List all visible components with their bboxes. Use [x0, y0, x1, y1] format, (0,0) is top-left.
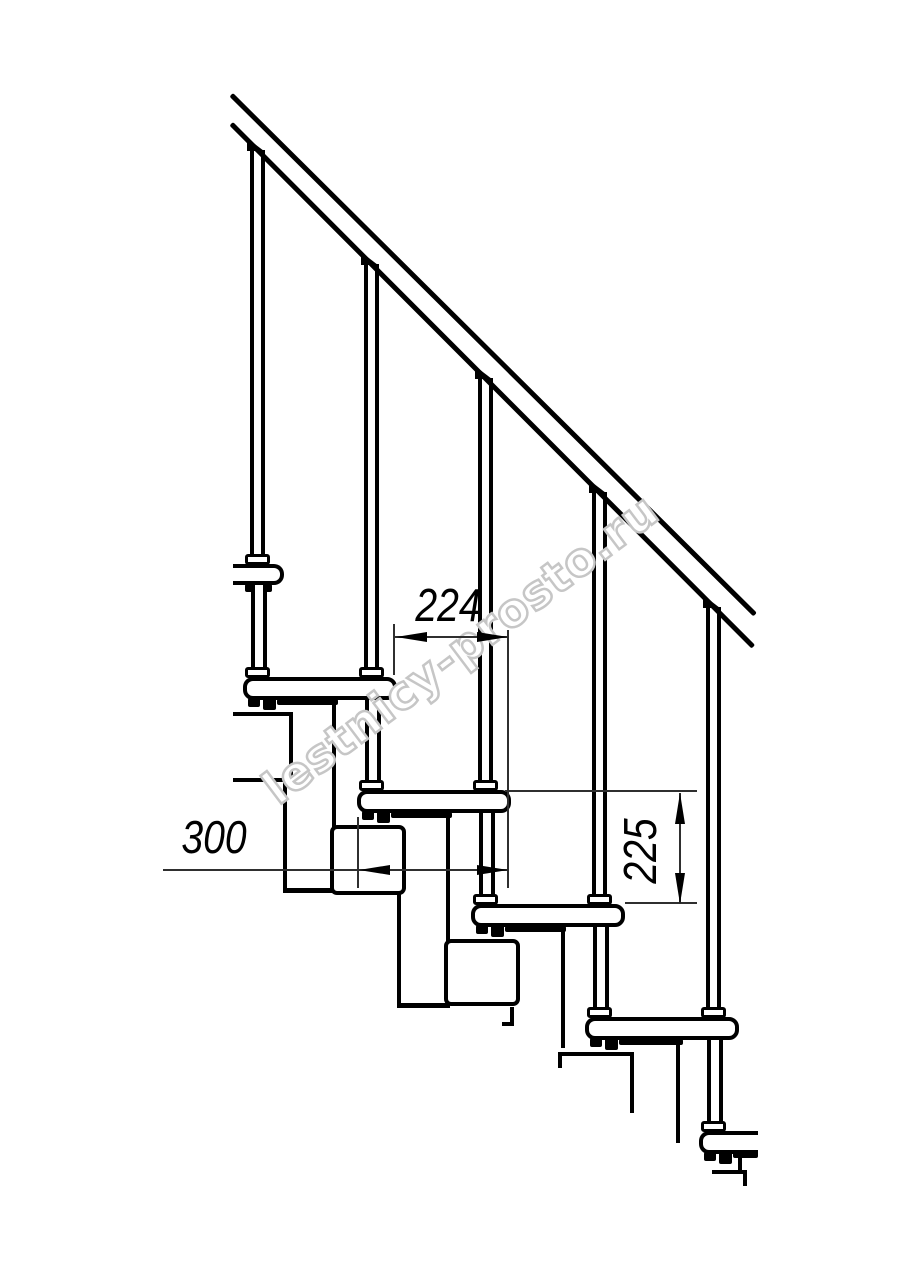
extension-line — [505, 790, 697, 792]
clamp-feet — [248, 698, 260, 707]
tread-upper-cropped — [233, 564, 284, 585]
rail-connector-wedge — [247, 138, 264, 151]
rail-connector-wedge — [703, 595, 720, 608]
module-lower-line — [283, 888, 336, 893]
dimension-value: 300 — [172, 810, 257, 864]
dimension-line — [163, 869, 508, 871]
tube-collar — [473, 780, 498, 791]
tread-underside-shadow — [733, 1152, 758, 1158]
tube-collar — [245, 554, 270, 565]
support-tube — [251, 585, 267, 667]
module-lower-line — [502, 1022, 514, 1026]
dimension-value: 225 — [613, 818, 667, 883]
clamp-feet — [377, 811, 390, 823]
module-lower-line — [743, 1170, 747, 1186]
extension-line — [507, 630, 509, 888]
module-body-edge — [558, 1056, 562, 1068]
clamp-feet — [491, 925, 504, 937]
clamp-feet — [704, 1152, 716, 1161]
rail-connector-wedge — [589, 480, 606, 493]
tube-collar — [701, 1007, 726, 1018]
tube-collar — [701, 1121, 726, 1132]
tube-collar — [473, 894, 498, 905]
support-tube — [707, 1040, 723, 1121]
dim-arrow-right — [477, 865, 508, 875]
tread-underside-shadow — [619, 1039, 683, 1045]
tread-lower-cropped — [699, 1131, 758, 1154]
tube-collar — [245, 667, 270, 678]
tread — [471, 904, 625, 927]
clamp-feet — [590, 1038, 602, 1047]
clamp-feet — [719, 1152, 732, 1164]
clamp-feet — [605, 1038, 618, 1050]
dim-arrow-left — [396, 632, 427, 642]
module-lower-line — [712, 1170, 747, 1174]
module-body-edge — [630, 1056, 634, 1113]
module-lower-line — [561, 925, 565, 1048]
module-lower-line — [397, 1003, 450, 1008]
baluster — [250, 150, 265, 554]
clamp-feet — [476, 925, 488, 934]
module-lower-line — [397, 891, 401, 1008]
extension-line — [625, 902, 697, 904]
support-tube — [479, 813, 495, 894]
extension-line — [393, 624, 395, 675]
tread-underside-shadow — [505, 926, 566, 932]
baluster — [706, 607, 721, 1007]
rail-connector-wedge — [475, 366, 492, 379]
tube-collar — [587, 1007, 612, 1018]
clamp-feet — [362, 811, 374, 820]
module-body-edge — [558, 1052, 634, 1056]
dim-arrow-right — [477, 632, 508, 642]
tread — [585, 1017, 739, 1040]
dim-arrow-up — [675, 793, 685, 824]
tread-underside-shadow — [391, 812, 452, 818]
module-body — [330, 825, 406, 895]
dimension-value: 224 — [400, 578, 497, 632]
baluster — [364, 264, 379, 667]
tube-collar — [359, 780, 384, 791]
staircase-drawing: lestnicy-prosto.ru 224 300 225 — [0, 0, 914, 1280]
module-lower-line — [676, 1040, 680, 1143]
dim-arrow-left — [359, 865, 390, 875]
clamp-feet — [263, 698, 276, 710]
support-tube — [593, 927, 609, 1007]
rail-connector-wedge — [361, 252, 378, 265]
extension-line — [357, 817, 359, 888]
dim-arrow-down — [675, 873, 685, 904]
tread — [357, 790, 511, 813]
module-body — [444, 939, 520, 1006]
tube-collar — [587, 894, 612, 905]
